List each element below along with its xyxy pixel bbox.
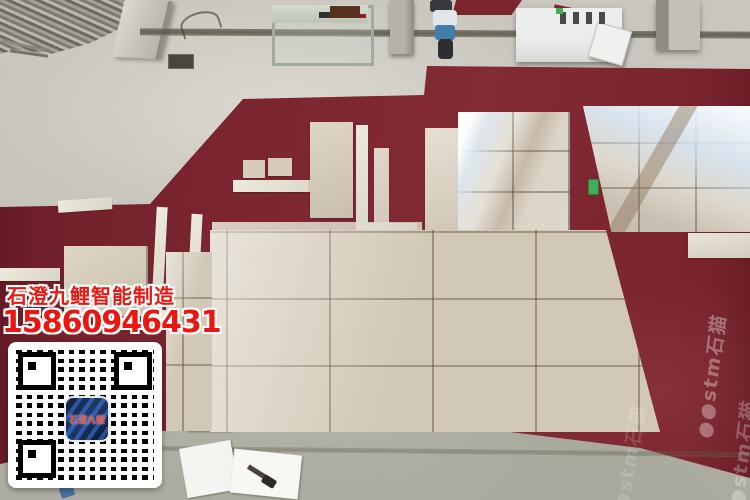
qr-finder-top-right [114, 352, 152, 390]
cart-tools [560, 12, 612, 24]
qr-finder-top-left [18, 352, 56, 390]
scooter-wheel [438, 39, 453, 59]
tile-small-pair [243, 160, 265, 178]
tile-strip-horizontal [0, 268, 60, 281]
tile-group-glossy-right [583, 106, 750, 232]
tile-small-pair [268, 158, 292, 176]
qr-logo-text: 石澄九鲤 [69, 413, 105, 426]
factory-floor-photo: ●●stm石猫 ●●stm石猫 ●●stm石猫 石澄九鲤智能制造 1586094… [0, 0, 750, 500]
tile-tall-center [310, 122, 353, 218]
scooter-seat [433, 10, 457, 26]
tile-group-main-left-column [166, 252, 212, 431]
tile-group-main [210, 230, 660, 432]
pillar-right [656, 0, 700, 50]
qr-finder-bottom-left [18, 440, 56, 478]
pillar-left [390, 0, 414, 54]
tile-extension-right [688, 233, 750, 258]
qr-center-logo: 石澄九鲤 [64, 396, 110, 442]
green-tool [556, 8, 563, 14]
green-tape-measure [588, 179, 599, 195]
scooter-body [435, 25, 455, 40]
qr-code: 石澄九鲤 [8, 342, 162, 488]
phone-number-overlay: 15860946431 [2, 308, 221, 338]
floor-drain [168, 54, 194, 69]
tile-group-glossy-left [458, 112, 570, 232]
table-items [330, 6, 360, 18]
brand-text-overlay: 石澄九鲤智能制造 [7, 286, 175, 306]
beam-reflection [602, 106, 701, 232]
scooter [428, 0, 464, 60]
